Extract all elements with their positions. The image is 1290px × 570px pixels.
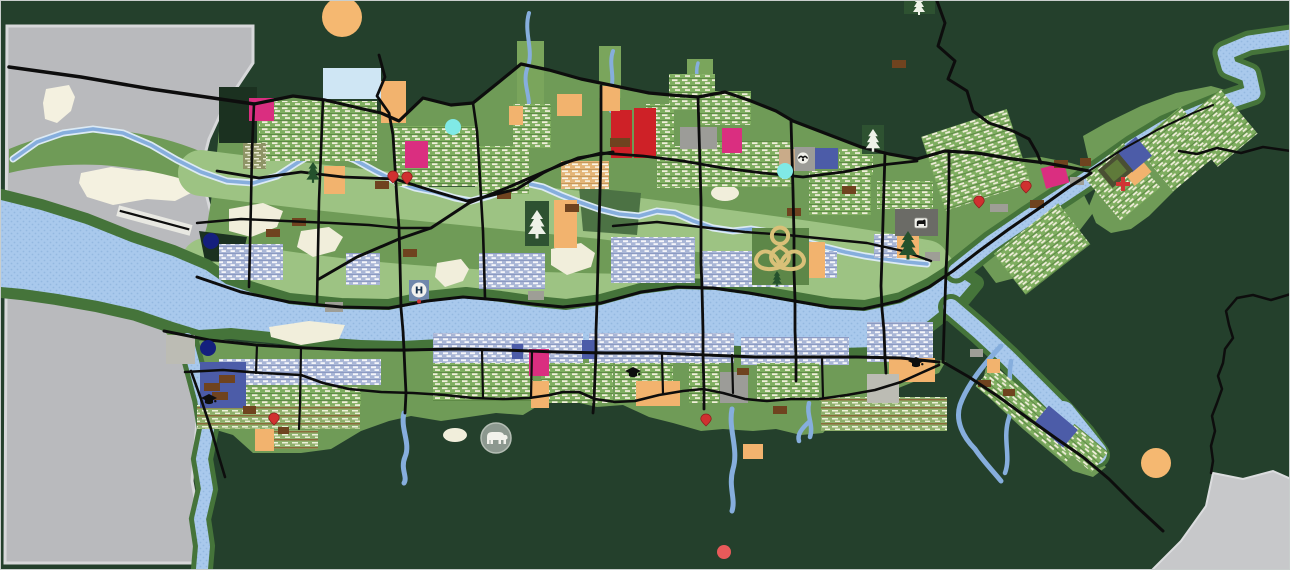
helipad-dot: [417, 300, 421, 304]
brown-lot-2: [266, 229, 280, 237]
orange-marker-2[interactable]: [1141, 448, 1171, 478]
orange-block-12: [255, 429, 274, 451]
master-plan-map-canvas[interactable]: H: [1, 1, 1290, 570]
elephant-icon[interactable]: [481, 423, 511, 453]
red-center-block-2: [634, 108, 656, 158]
light-blue-block: [323, 68, 381, 99]
bird-icon[interactable]: [797, 152, 809, 164]
brown-lot-17: [610, 138, 630, 147]
navy-marker-1[interactable]: [203, 233, 219, 249]
brown-lot-6: [565, 204, 579, 212]
orange-block-13: [743, 444, 763, 459]
dock-6: [970, 349, 983, 357]
brown-lot-19: [1003, 389, 1015, 396]
orange-block-5: [324, 166, 345, 194]
magenta-block-2: [405, 141, 428, 168]
brown-step-2: [204, 383, 220, 391]
brown-lot-14: [773, 406, 787, 414]
dock-2: [528, 291, 544, 300]
magenta-block-3: [722, 128, 742, 153]
brown-lot-8: [842, 186, 856, 194]
animal-icon[interactable]: [915, 218, 928, 228]
orange-block-4: [600, 86, 620, 111]
brown-lot-13: [737, 368, 749, 375]
indigo-block-4: [582, 340, 595, 359]
orange-block-2: [509, 106, 523, 125]
map-viewport[interactable]: H: [0, 0, 1290, 570]
red-marker[interactable]: [717, 545, 731, 559]
cyan-marker-2[interactable]: [777, 163, 793, 179]
indigo-block-1: [814, 148, 838, 169]
red-center-block-1: [611, 110, 632, 158]
brick-block-1: [166, 335, 195, 364]
brown-lot-9: [892, 60, 906, 68]
orange-block-15: [987, 359, 1000, 373]
brown-lot-4: [403, 249, 417, 257]
navy-marker-2[interactable]: [200, 340, 216, 356]
orange-block-3: [557, 94, 582, 116]
brown-lot-12: [1080, 158, 1091, 166]
brown-lot-3: [375, 181, 389, 189]
dock-3: [990, 204, 1008, 212]
brown-lot-15: [243, 406, 256, 414]
brown-step-1: [219, 375, 235, 383]
cyan-marker-1[interactable]: [445, 119, 461, 135]
helipad-label: H: [415, 286, 423, 297]
brown-lot-16: [278, 427, 289, 434]
